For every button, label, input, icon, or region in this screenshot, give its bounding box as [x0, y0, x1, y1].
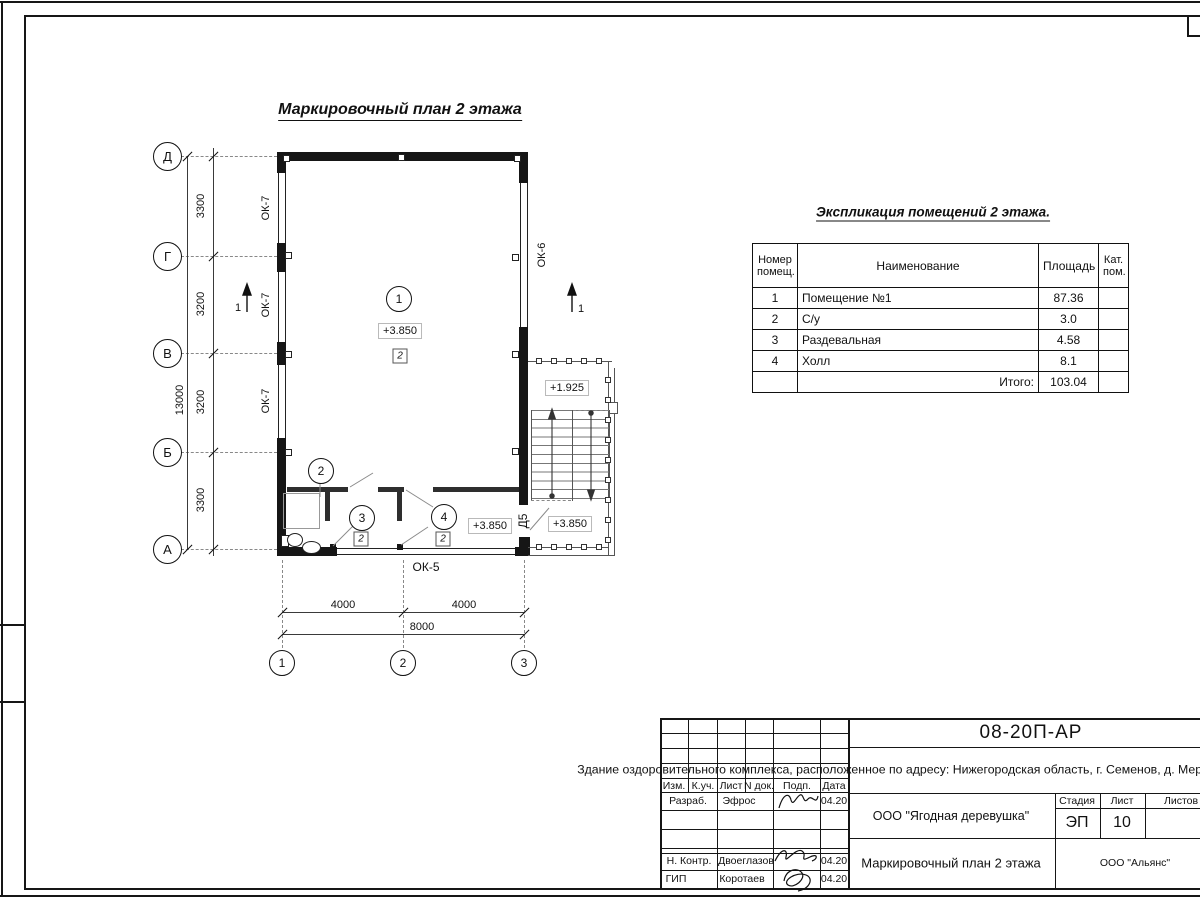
room-marker-4: 4: [431, 504, 457, 530]
dim-text-4000-1: 4000: [331, 599, 355, 611]
cell-num: [753, 372, 798, 393]
table-total-row: Итого: 103.04: [753, 372, 1129, 393]
axis-bubble-1: 1: [269, 650, 295, 676]
section-label-left: 1: [235, 302, 241, 314]
stamp-col-ndoc: N док.: [744, 780, 774, 792]
total-value: 103.04: [1039, 372, 1099, 393]
axis-label-3: 3: [521, 656, 528, 670]
explication-title: Экспликация помещений 2 этажа.: [816, 205, 1050, 220]
stamp-line: [660, 733, 848, 734]
cell-name: Раздевальная: [798, 330, 1039, 351]
table-header-row: Номер помещ. Наименование Площадь Кат. п…: [753, 244, 1129, 288]
stamp-col-list: Лист: [720, 780, 743, 792]
cell-num: 3: [753, 330, 798, 351]
cell-num: 2: [753, 309, 798, 330]
stamp-line: [848, 747, 1200, 748]
corner-box-bottom: [1187, 35, 1200, 37]
frame-bottom: [24, 888, 1200, 890]
cell-cat: [1099, 309, 1129, 330]
stamp-line: [848, 793, 1200, 794]
cell-cat: [1099, 351, 1129, 372]
room-number: 2: [318, 464, 325, 478]
cell-cat: [1099, 372, 1129, 393]
stamp-role-gip: ГИП: [666, 873, 687, 885]
window-label-ok6: ОК-6: [536, 243, 548, 268]
cell-name: Холл: [798, 351, 1039, 372]
cell-cat: [1099, 288, 1129, 309]
sheet-edge-bottom: [0, 895, 1200, 897]
window-label-ok7-2: ОК-7: [260, 293, 272, 318]
stamp-line: [848, 718, 850, 888]
room-number: 3: [359, 511, 366, 525]
stamp-drawing-title: Маркировочный план 2 этажа: [861, 856, 1041, 871]
stamp-stage-value: ЭП: [1066, 814, 1089, 832]
cell-area: 3.0: [1039, 309, 1099, 330]
cell-area: 4.58: [1039, 330, 1099, 351]
stamp-line: [848, 838, 1200, 839]
stamp-date-1: 04.20: [821, 795, 847, 807]
stamp-line: [660, 718, 1200, 720]
signature-nkontr-gip: [772, 843, 822, 893]
table-row: 2 С/у 3.0: [753, 309, 1129, 330]
stamp-sheets-label: Листов: [1164, 795, 1198, 807]
stamp-stage-label: Стадия: [1059, 795, 1095, 807]
elevation-main: +3.850: [378, 323, 422, 339]
cell-num: 1: [753, 288, 798, 309]
stamp-name-korotaev: Коротаев: [719, 873, 764, 885]
stamp-line: [1055, 808, 1200, 809]
stamp-date-3: 04.20: [821, 873, 847, 885]
section-label-right: 1: [578, 303, 584, 315]
stamp-line: [688, 718, 689, 792]
room-marker-2: 2: [308, 458, 334, 484]
stamp-client: ООО "Ягодная деревушка": [873, 809, 1029, 823]
cell-name: С/у: [798, 309, 1039, 330]
axis-bubble-3: 3: [511, 650, 537, 676]
floor-type-box: 2: [354, 532, 369, 547]
stamp-date-2: 04.20: [821, 855, 847, 867]
col-header-area: Площадь: [1039, 244, 1099, 288]
dim-text-4000-2: 4000: [452, 599, 476, 611]
cell-name: Помещение №1: [798, 288, 1039, 309]
signature-razrab: [776, 788, 820, 814]
cell-area: 87.36: [1039, 288, 1099, 309]
room-number: 1: [396, 292, 403, 306]
table-row: 3 Раздевальная 4.58: [753, 330, 1129, 351]
drawing-sheet: Маркировочный план 2 этажа 3300 3200 320…: [0, 0, 1200, 900]
stamp-sheet-value: 10: [1113, 814, 1131, 832]
floor-type-box: 2: [393, 349, 408, 364]
dim-text-8000: 8000: [410, 621, 434, 633]
stamp-col-kuch: К.уч.: [692, 780, 715, 792]
stamp-line: [660, 748, 848, 749]
cell-area: 8.1: [1039, 351, 1099, 372]
window-label-ok7-1: ОК-7: [260, 196, 272, 221]
room-number: 4: [441, 510, 448, 524]
elevation-stair-mid: +1.925: [545, 380, 589, 396]
col-header-cat: Кат. пом.: [1099, 244, 1129, 288]
stamp-project-name: Здание оздоровительного комплекса, распо…: [577, 763, 1200, 778]
stamp-role-nkontr: Н. Контр.: [667, 855, 712, 867]
axis-bubble-2: 2: [390, 650, 416, 676]
window-label-ok5: ОК-5: [413, 560, 440, 574]
stamp-line: [660, 718, 662, 888]
door-label-d5: Д5: [516, 514, 530, 529]
cell-num: 4: [753, 351, 798, 372]
stamp-org: ООО "Альянс": [1100, 857, 1170, 869]
stamp-role-razrab: Разраб.: [669, 795, 707, 807]
axis-label-2: 2: [400, 656, 407, 670]
stamp-sheet-label: Лист: [1111, 795, 1134, 807]
elevation-stair-low: +3.850: [548, 516, 592, 532]
cell-cat: [1099, 330, 1129, 351]
dim-line-8000: [282, 634, 524, 635]
margin-mark-2: [0, 701, 24, 703]
corner-box-left: [1187, 15, 1189, 37]
stamp-name-efros: Эфрос: [722, 795, 755, 807]
room-marker-3: 3: [349, 505, 375, 531]
stamp-col-data: Дата: [822, 780, 845, 792]
total-label: Итого:: [798, 372, 1039, 393]
room-marker-1: 1: [386, 286, 412, 312]
floor-type-box: 2: [436, 532, 451, 547]
plan-annotation-lines: [0, 0, 660, 700]
table-row: 4 Холл 8.1: [753, 351, 1129, 372]
stamp-line: [1145, 793, 1146, 838]
axis-label-1: 1: [279, 656, 286, 670]
stamp-line: [1100, 793, 1101, 838]
stamp-line: [660, 829, 848, 830]
explication-table: Номер помещ. Наименование Площадь Кат. п…: [752, 243, 1129, 393]
col-header-num: Номер помещ.: [753, 244, 798, 288]
stamp-col-izm: Изм.: [663, 780, 686, 792]
stamp-name-dvoeglazov: Двоеглазов: [718, 855, 774, 867]
window-label-ok7-3: ОК-7: [260, 389, 272, 414]
elevation-room4: +3.850: [468, 518, 512, 534]
stamp-doc-number: 08-20П-АР: [980, 722, 1083, 744]
table-row: 1 Помещение №1 87.36: [753, 288, 1129, 309]
col-header-name: Наименование: [798, 244, 1039, 288]
